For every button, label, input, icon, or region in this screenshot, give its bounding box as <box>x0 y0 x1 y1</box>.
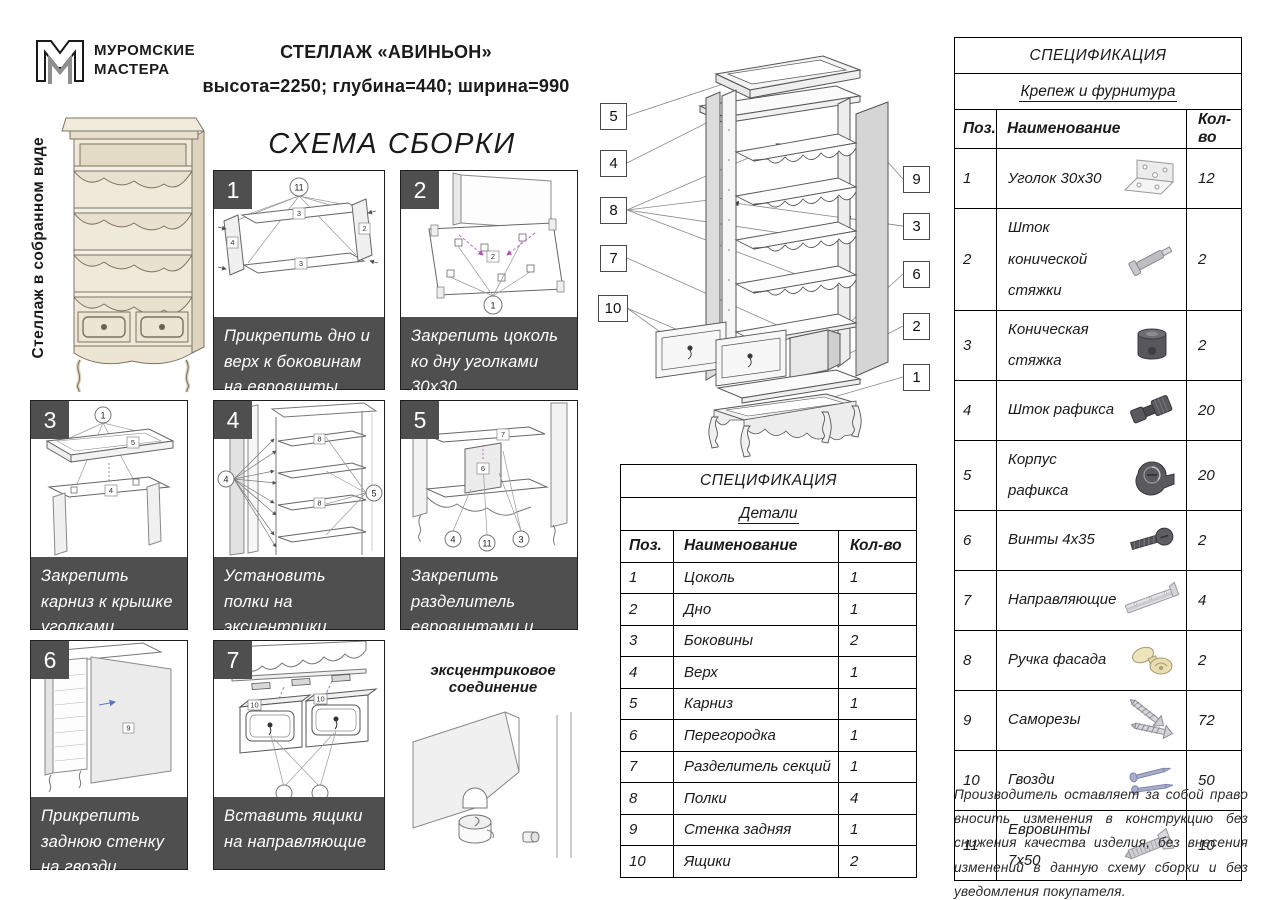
hardware-spec-table: СПЕЦИФИКАЦИЯ Крепеж и фурнитура Поз. Наи… <box>954 37 1242 881</box>
table-row: 3Боковины2 <box>621 625 917 657</box>
hardware-table-subtitle: Крепеж и фурнитура <box>955 74 1242 110</box>
dimensions-line: высота=2250; глубина=440; ширина=990 <box>200 76 572 97</box>
step-caption: Закрепить разделитель евровинтами и стяж… <box>401 557 577 629</box>
callout-7: 7 <box>600 245 627 272</box>
conical-nut-icon <box>1121 322 1183 368</box>
brand-logo: МУРОМСКИЕ МАСТЕРА <box>34 36 195 86</box>
header-row: Поз. Наименование Кол-во <box>621 531 917 563</box>
col-header-name: Наименование <box>674 531 839 563</box>
step-caption: Закрепить карниз к крышке уголками <box>31 557 187 629</box>
table-row: 1Цоколь1 <box>621 562 917 594</box>
step-number-badge: 2 <box>401 171 439 209</box>
table-row: 9 Саморезы 72 <box>955 690 1242 750</box>
hardware-table-title: СПЕЦИФИКАЦИЯ <box>955 38 1242 74</box>
svg-text:2: 2 <box>362 224 366 233</box>
step-number-badge: 5 <box>401 401 439 439</box>
table-row: 5Карниз1 <box>621 688 917 720</box>
angle-bracket-icon <box>1121 156 1183 202</box>
table-row: 6 Винты 4х35 2 <box>955 510 1242 570</box>
svg-text:7: 7 <box>501 430 505 439</box>
svg-text:9: 9 <box>126 724 130 733</box>
callout-3: 3 <box>903 213 930 240</box>
scheme-title: СХЕМА СБОРКИ <box>232 128 552 161</box>
svg-text:4: 4 <box>230 238 234 247</box>
step-caption: Установить полки на эксцентрики «рафикс» <box>214 557 384 629</box>
header-row: Поз. Наименование Кол-во <box>955 110 1242 149</box>
step-number-badge: 6 <box>31 641 69 679</box>
parts-spec-table: СПЕЦИФИКАЦИЯ Детали Поз. Наименование Ко… <box>620 464 917 878</box>
rafix-rod-icon <box>1121 387 1183 433</box>
exploded-diagram: 5 4 8 7 10 9 3 6 2 1 <box>598 40 935 460</box>
table-row: 1 Уголок 30х30 12 <box>955 149 1242 209</box>
assembled-shelf-illustration <box>58 100 208 395</box>
assembled-view-label: Стеллаж в собранном виде <box>30 100 48 395</box>
step-card-1: 1 11 <box>213 170 385 390</box>
svg-text:5: 5 <box>371 489 376 499</box>
svg-text:11: 11 <box>294 183 303 193</box>
table-row: 7 Направляющие 4 <box>955 570 1242 630</box>
table-row: 10Ящики2 <box>621 846 917 878</box>
callout-4: 4 <box>600 150 627 177</box>
table-row: 9Стенка задняя1 <box>621 814 917 846</box>
assembly-instruction-page: МУРОМСКИЕ МАСТЕРА СТЕЛЛАЖ «АВИНЬОН» высо… <box>0 0 1273 900</box>
exploded-drawing <box>598 40 935 460</box>
parts-table-title: СПЕЦИФИКАЦИЯ <box>621 465 917 498</box>
col-header-qty: Кол-во <box>1187 110 1242 149</box>
svg-text:4: 4 <box>223 475 228 485</box>
table-row: 2 Шток конической стяжки 2 <box>955 209 1242 311</box>
step-card-6: 6 9 Прикрепить заднюю <box>30 640 188 870</box>
callout-5: 5 <box>600 103 627 130</box>
step-number-badge: 3 <box>31 401 69 439</box>
svg-text:3: 3 <box>297 209 301 218</box>
handle-icon <box>1121 637 1183 683</box>
step-card-4: 4 <box>213 400 385 630</box>
svg-text:3: 3 <box>299 259 303 268</box>
callout-2: 2 <box>903 313 930 340</box>
svg-text:10: 10 <box>250 701 258 710</box>
svg-text:8: 8 <box>317 499 321 508</box>
page-title: СТЕЛЛАЖ «АВИНЬОН» <box>200 42 572 63</box>
callout-10: 10 <box>598 295 628 322</box>
table-row: 8 Ручка фасада 2 <box>955 630 1242 690</box>
manufacturer-disclaimer: Производитель оставляет за собой право в… <box>954 783 1248 900</box>
col-header-pos: Поз. <box>621 531 674 563</box>
table-row: 2Дно1 <box>621 594 917 626</box>
svg-text:4: 4 <box>450 535 455 545</box>
table-row: 4 Шток рафикса 20 <box>955 380 1242 440</box>
step-card-5: 5 7 6 4 <box>400 400 578 630</box>
brand-line1: МУРОМСКИЕ <box>94 42 195 61</box>
svg-text:1: 1 <box>490 301 495 311</box>
table-row: 6Перегородка1 <box>621 720 917 752</box>
svg-text:6: 6 <box>481 464 485 473</box>
step-caption: Вставить ящики на направляющие <box>214 797 384 869</box>
svg-text:8: 8 <box>317 435 321 444</box>
table-row: 5 Корпус рафикса 20 <box>955 440 1242 510</box>
step-card-2: 2 <box>400 170 578 390</box>
step-caption: Прикрепить дно и верх к боковинам на евр… <box>214 317 384 389</box>
col-header-name: Наименование <box>997 110 1187 149</box>
step-number-badge: 1 <box>214 171 252 209</box>
title-block: СТЕЛЛАЖ «АВИНЬОН» высота=2250; глубина=4… <box>200 42 572 97</box>
svg-text:4: 4 <box>109 486 113 495</box>
svg-text:11: 11 <box>482 539 491 549</box>
brand-m-icon <box>34 36 88 86</box>
eccentric-joint-drawing <box>405 690 580 865</box>
screw-icon <box>1121 517 1183 563</box>
table-row: 7Разделитель секций1 <box>621 751 917 783</box>
parts-table-subtitle: Детали <box>621 498 917 531</box>
step-number-badge: 7 <box>214 641 252 679</box>
drawer-slide-icon <box>1121 577 1183 623</box>
table-row: 4Верх1 <box>621 657 917 689</box>
svg-text:2: 2 <box>491 252 495 261</box>
step-card-3: 3 5 4 <box>30 400 188 630</box>
col-header-pos: Поз. <box>955 110 997 149</box>
table-row: 3 Коническая стяжка 2 <box>955 310 1242 380</box>
conical-bolt-rod-icon <box>1121 236 1183 282</box>
rafix-cam-icon <box>1121 452 1183 498</box>
svg-text:3: 3 <box>518 535 523 545</box>
callout-8: 8 <box>600 197 627 224</box>
step-caption: Закрепить цоколь ко дну уголками 30х30 <box>401 317 577 389</box>
brand-line2: МАСТЕРА <box>94 61 195 80</box>
svg-text:1: 1 <box>100 411 105 421</box>
step-caption: Прикрепить заднюю стенку на гвозди <box>31 797 187 869</box>
col-header-qty: Кол-во <box>839 531 917 563</box>
svg-text:10: 10 <box>316 695 324 704</box>
svg-text:5: 5 <box>131 438 135 447</box>
callout-6: 6 <box>903 261 930 288</box>
table-row: 8Полки4 <box>621 783 917 815</box>
callout-1: 1 <box>903 364 930 391</box>
step-card-7: 7 10 <box>213 640 385 870</box>
callout-9: 9 <box>903 166 930 193</box>
self-tapping-screws-icon <box>1121 697 1183 743</box>
step-number-badge: 4 <box>214 401 252 439</box>
